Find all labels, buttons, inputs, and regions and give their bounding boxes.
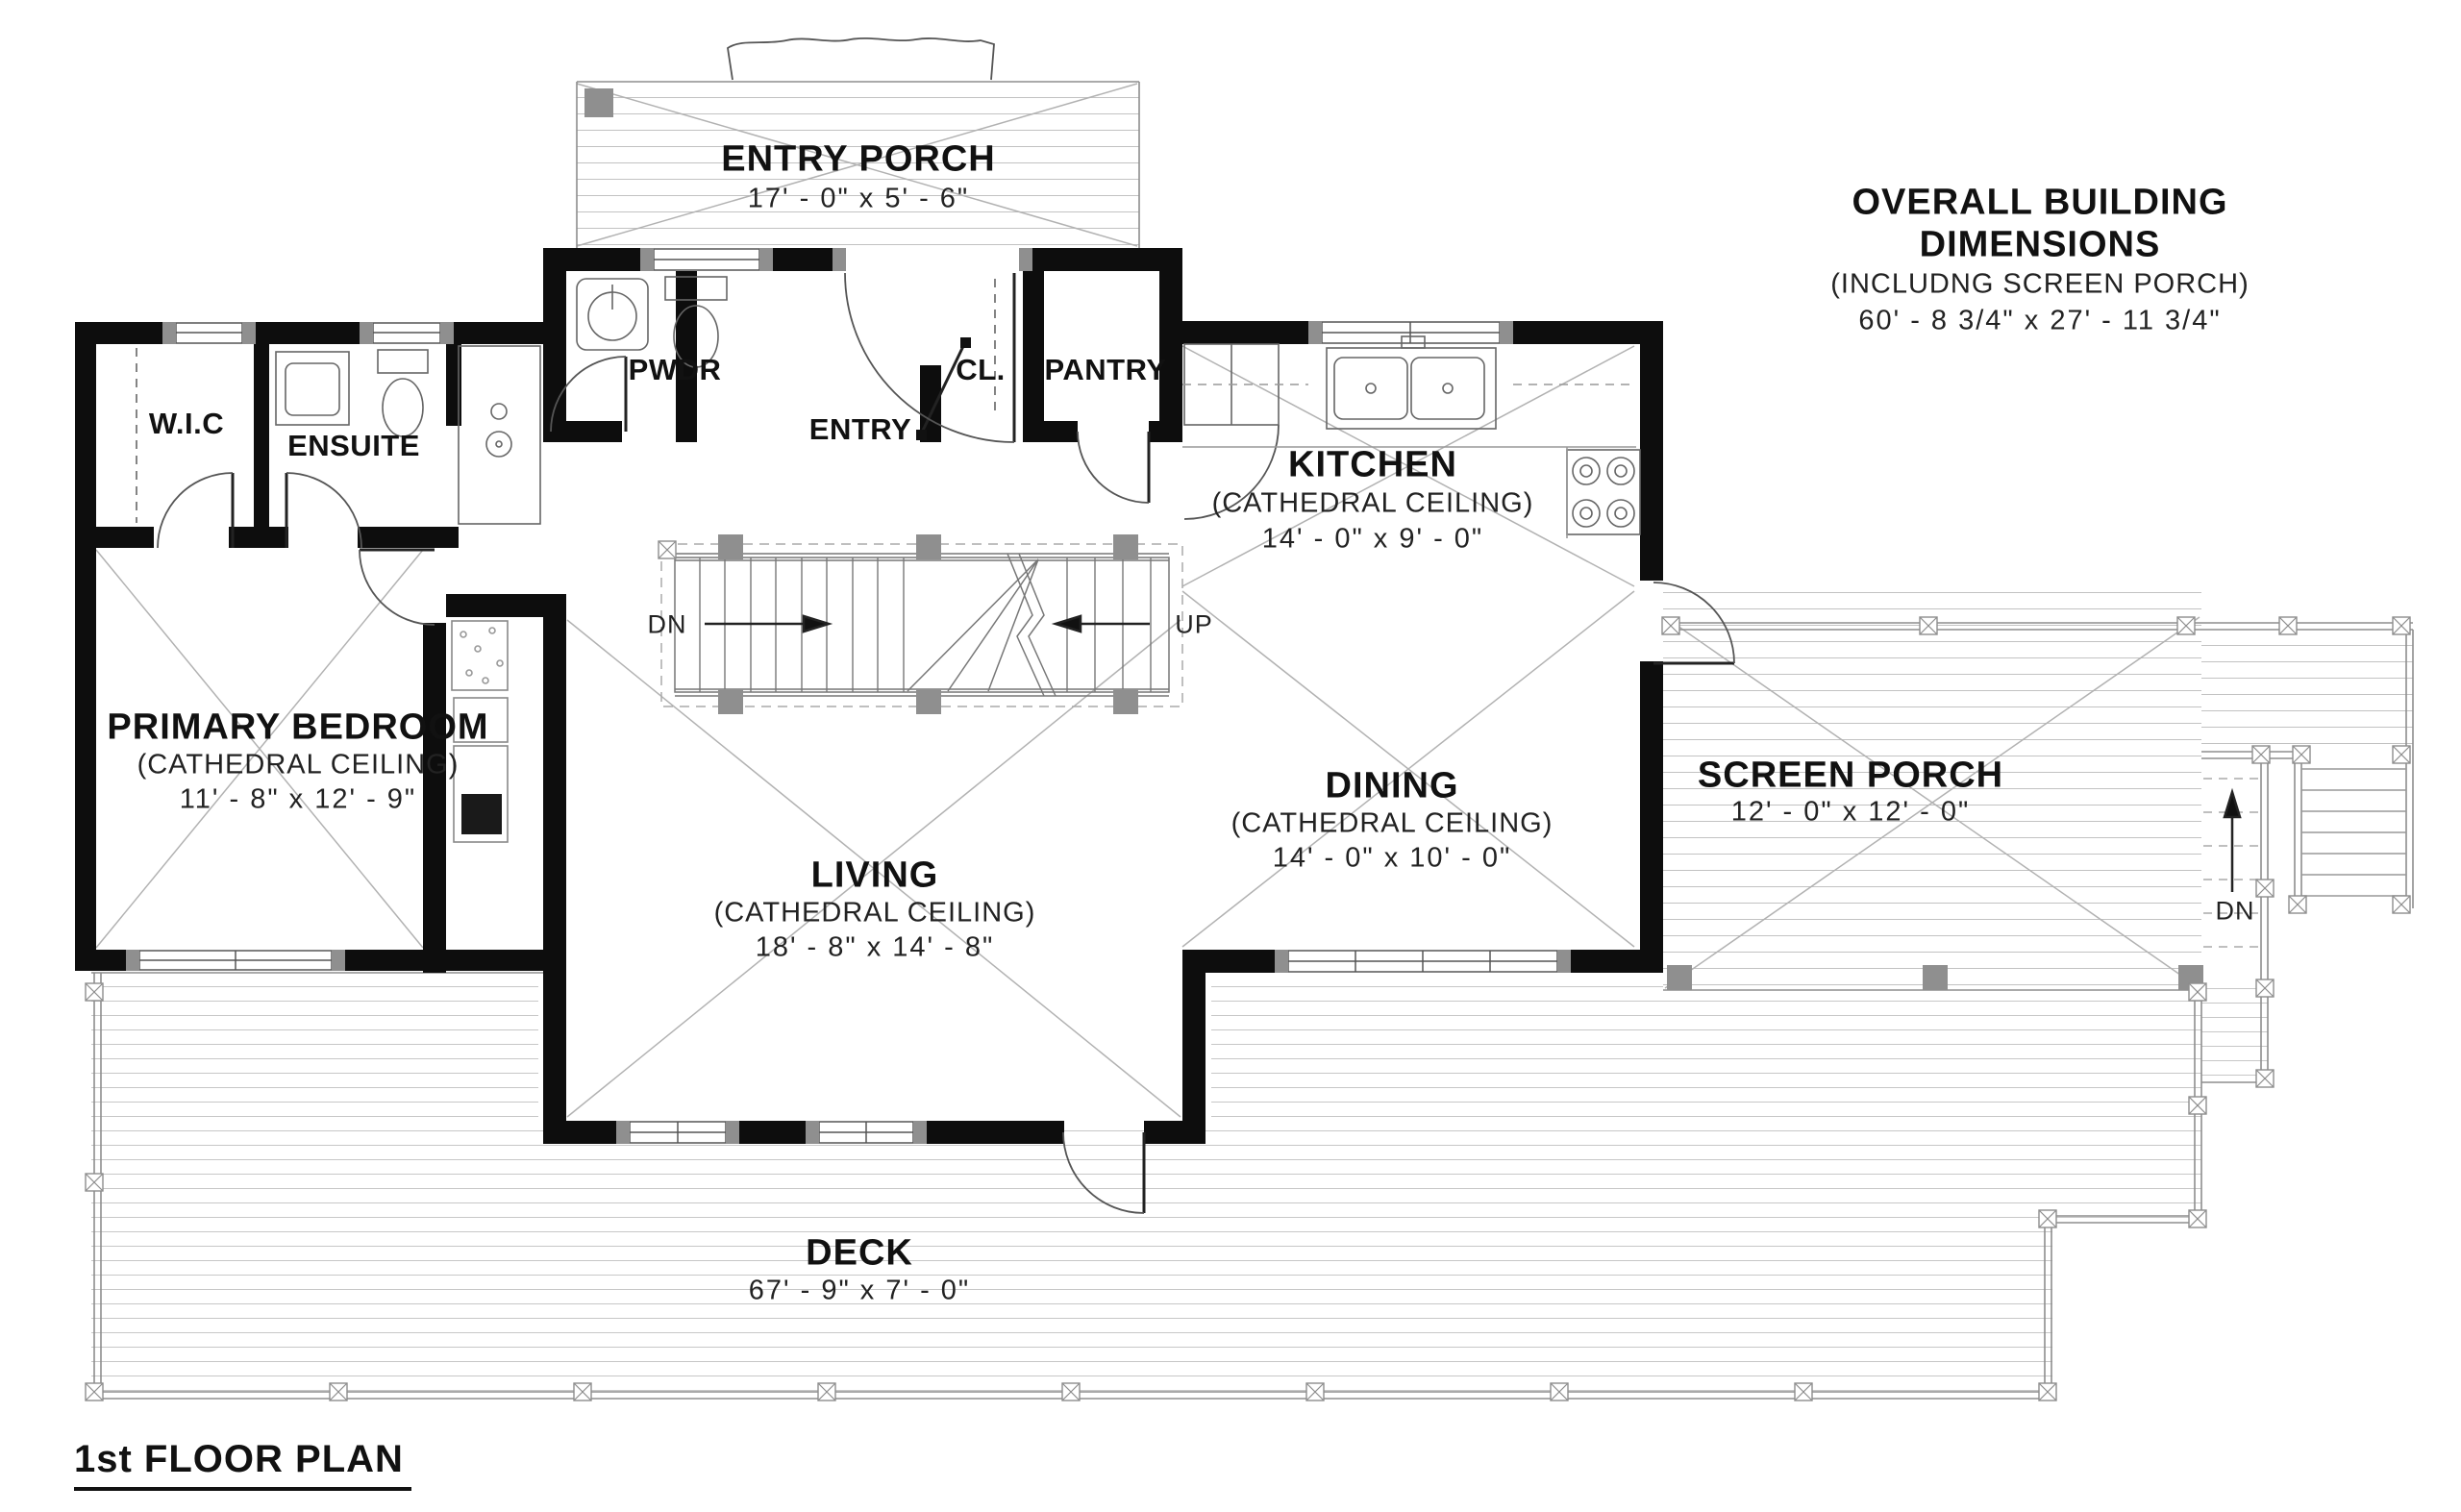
deck-label: DECK [806,1233,913,1275]
cl-label: CL. [956,353,1005,387]
primary-bedroom-label: PRIMARY BEDROOM [107,707,488,749]
living-ceiling-note: (CATHEDRAL CEILING) [714,898,1036,930]
overall-dimensions-title: OVERALL BUILDING DIMENSIONS [1814,182,2266,265]
kitchen-ceiling-note: (CATHEDRAL CEILING) [1212,488,1534,520]
stair-up-arrow [1056,616,1081,632]
entry-porch-label: ENTRY PORCH [721,139,995,181]
dining-label: DINING [1326,766,1459,807]
dining-ceiling-note: (CATHEDRAL CEILING) [1231,808,1554,840]
overall-dimensions-value: 60' - 8 3/4" x 27' - 11 3/4" [1858,306,2221,337]
stair-down-label: DN [648,610,687,640]
entry-label: ENTRY [809,412,911,447]
screen-porch-dims: 12' - 0" x 12' - 0" [1731,797,1971,829]
deck-down-label: DN [2216,897,2255,927]
ensuite-shower [459,346,540,524]
ensuite-toilet [378,350,428,373]
wic-label: W.I.C [149,407,224,441]
ensuite-label: ENSUITE [287,429,420,463]
living-floor [538,971,1211,1125]
stair-down-arrow [804,616,829,632]
sheet-title: 1st FLOOR PLAN [74,1438,411,1491]
screen-porch-label: SCREEN PORCH [1698,756,2003,797]
living-label: LIVING [811,855,939,897]
stove [1567,450,1640,534]
pantry-label: PANTRY [1045,353,1167,387]
stair-up-label: UP [1175,610,1213,640]
floor-plan-canvas: ENTRY PORCH 17' - 0" x 5' - 6" OVERALL B… [0,0,2461,1512]
kitchen-dims: 14' - 0" x 9' - 0" [1262,524,1483,556]
entry-porch-dims: 17' - 0" x 5' - 6" [748,184,969,215]
primary-bedroom-dims: 11' - 8" x 12' - 9" [180,784,416,816]
dining-dims: 14' - 0" x 10' - 0" [1273,843,1512,875]
deck-dims: 67' - 9" x 7' - 0" [749,1276,970,1307]
entry-steps-outline [728,38,994,80]
kitchen-label: KITCHEN [1288,445,1457,486]
deck-down-arrow [2225,792,2240,817]
living-dims: 18' - 8" x 14' - 8" [756,932,995,964]
pwdr-label: PWDR [629,353,722,387]
primary-bedroom-ceiling-note: (CATHEDRAL CEILING) [137,750,460,781]
overall-dimensions-subtitle: (INCLUDNG SCREEN PORCH) [1830,269,2249,301]
